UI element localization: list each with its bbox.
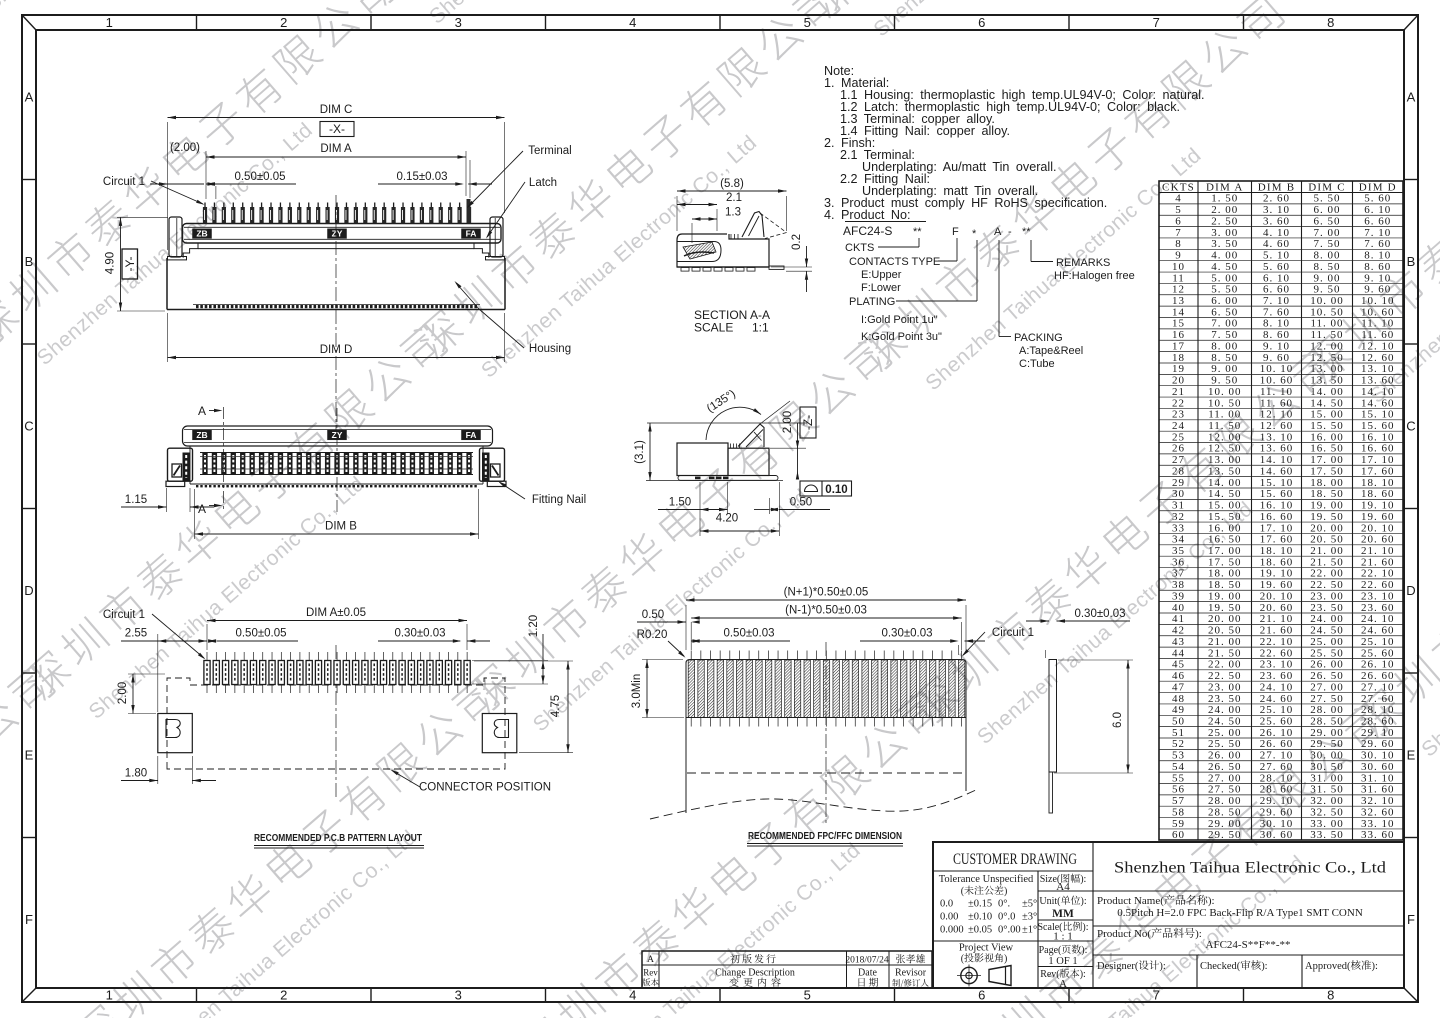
svg-text:4. 60: 4. 60 xyxy=(1263,238,1290,250)
svg-text:17. 60: 17. 60 xyxy=(1361,465,1395,477)
svg-text:12. 50: 12. 50 xyxy=(1208,443,1242,455)
svg-text:17. 60: 17. 60 xyxy=(1260,534,1294,546)
svg-text:RECOMMENDED FPC/FFC DIMENSION: RECOMMENDED FPC/FFC DIMENSION xyxy=(748,830,902,842)
svg-text:19. 00: 19. 00 xyxy=(1208,590,1242,602)
svg-text:0.50: 0.50 xyxy=(790,497,812,509)
svg-text:37: 37 xyxy=(1172,568,1185,580)
svg-text:F: F xyxy=(1407,912,1415,927)
svg-text:*: * xyxy=(972,228,977,240)
svg-text:29. 00: 29. 00 xyxy=(1310,727,1344,739)
svg-text:10. 50: 10. 50 xyxy=(1208,397,1242,409)
svg-text:ZB: ZB xyxy=(196,430,207,440)
svg-text:7. 60: 7. 60 xyxy=(1263,306,1290,318)
svg-text:19. 60: 19. 60 xyxy=(1260,579,1294,591)
svg-text:4. Product No:: 4. Product No: xyxy=(824,208,911,222)
svg-text:CKTS: CKTS xyxy=(1162,182,1195,194)
svg-text:25. 10: 25. 10 xyxy=(1361,636,1395,648)
svg-text:18. 00: 18. 00 xyxy=(1310,477,1344,489)
svg-text:A: A xyxy=(647,955,654,965)
svg-text:11. 00: 11. 00 xyxy=(1208,409,1241,421)
svg-text:):: ): xyxy=(1208,895,1215,907)
svg-text:12. 60: 12. 60 xyxy=(1260,420,1294,432)
svg-text:29: 29 xyxy=(1172,477,1185,489)
svg-text:29. 50: 29. 50 xyxy=(1208,829,1242,841)
svg-text:21. 50: 21. 50 xyxy=(1310,556,1344,568)
svg-text:24. 50: 24. 50 xyxy=(1208,715,1242,727)
svg-text:15. 00: 15. 00 xyxy=(1310,409,1344,421)
svg-text:27. 50: 27. 50 xyxy=(1310,693,1344,705)
svg-text:22. 60: 22. 60 xyxy=(1361,579,1395,591)
svg-text:41: 41 xyxy=(1172,613,1185,625)
svg-text:22. 00: 22. 00 xyxy=(1310,568,1344,580)
svg-text:22. 60: 22. 60 xyxy=(1260,647,1294,659)
svg-text:26. 00: 26. 00 xyxy=(1310,659,1344,671)
svg-text:24. 10: 24. 10 xyxy=(1361,613,1395,625)
svg-text:27. 60: 27. 60 xyxy=(1260,761,1294,773)
svg-text:32. 50: 32. 50 xyxy=(1310,806,1344,818)
svg-text:Circuit 1: Circuit 1 xyxy=(992,627,1034,639)
svg-text:(3.1): (3.1) xyxy=(634,440,646,464)
svg-text:9. 50: 9. 50 xyxy=(1211,375,1238,387)
svg-text:27. 10: 27. 10 xyxy=(1361,681,1395,693)
svg-text:R0.20: R0.20 xyxy=(637,629,668,641)
svg-text:A: A xyxy=(25,90,34,105)
svg-text:23. 00: 23. 00 xyxy=(1310,590,1344,602)
svg-text:32. 10: 32. 10 xyxy=(1361,795,1395,807)
svg-text:DIM B: DIM B xyxy=(325,521,357,533)
svg-text:22: 22 xyxy=(1172,397,1185,409)
svg-text:FA: FA xyxy=(466,430,477,440)
svg-text:B: B xyxy=(1407,254,1416,269)
svg-text:30. 60: 30. 60 xyxy=(1361,761,1395,773)
svg-text:22. 00: 22. 00 xyxy=(1208,659,1242,671)
svg-text:3. 10: 3. 10 xyxy=(1263,204,1290,216)
svg-text:±0.05: ±0.05 xyxy=(968,925,992,936)
svg-text:3: 3 xyxy=(455,988,462,1003)
svg-text:28. 00: 28. 00 xyxy=(1310,704,1344,716)
svg-text:):: ): xyxy=(1261,961,1267,972)
svg-text:6. 60: 6. 60 xyxy=(1263,284,1290,296)
svg-text:9. 10: 9. 10 xyxy=(1364,272,1391,284)
svg-text:MM: MM xyxy=(1052,908,1074,920)
svg-text:Designer(: Designer( xyxy=(1097,961,1139,972)
svg-text:28. 60: 28. 60 xyxy=(1260,784,1294,796)
svg-text:Circuit 1: Circuit 1 xyxy=(103,609,145,621)
svg-text:A: A xyxy=(994,226,1002,238)
svg-text:34: 34 xyxy=(1172,534,1185,546)
svg-text:4: 4 xyxy=(629,15,636,30)
svg-text:13. 10: 13. 10 xyxy=(1361,363,1395,375)
svg-text:20. 00: 20. 00 xyxy=(1310,522,1344,534)
svg-text:16. 00: 16. 00 xyxy=(1208,522,1242,534)
svg-text:27: 27 xyxy=(1172,454,1185,466)
svg-text:CKTS: CKTS xyxy=(845,242,874,254)
svg-text:23. 10: 23. 10 xyxy=(1260,659,1294,671)
svg-text:**: ** xyxy=(1022,226,1031,238)
svg-text:DIM C: DIM C xyxy=(320,104,353,116)
svg-text:11. 60: 11. 60 xyxy=(1361,329,1394,341)
svg-text:13. 00: 13. 00 xyxy=(1310,363,1344,375)
svg-text:2. 00: 2. 00 xyxy=(1211,204,1238,216)
svg-text:17. 50: 17. 50 xyxy=(1208,556,1242,568)
svg-text:10. 50: 10. 50 xyxy=(1310,306,1344,318)
svg-text:0.2: 0.2 xyxy=(791,234,803,250)
svg-text:Housing: Housing xyxy=(529,343,571,355)
svg-text:12. 10: 12. 10 xyxy=(1260,409,1294,421)
svg-text:20. 10: 20. 10 xyxy=(1260,590,1294,602)
svg-text:28. 50: 28. 50 xyxy=(1208,806,1242,818)
svg-text:4. 50: 4. 50 xyxy=(1211,261,1238,273)
svg-text:16. 10: 16. 10 xyxy=(1260,500,1294,512)
svg-text:CONNECTOR POSITION: CONNECTOR POSITION xyxy=(419,782,551,794)
svg-text:51: 51 xyxy=(1172,727,1185,739)
svg-text:0.30±0.03: 0.30±0.03 xyxy=(394,628,445,640)
svg-text:28. 00: 28. 00 xyxy=(1208,795,1242,807)
svg-text:12. 10: 12. 10 xyxy=(1361,340,1395,352)
svg-text:25. 00: 25. 00 xyxy=(1310,636,1344,648)
svg-text:43: 43 xyxy=(1172,636,1185,648)
svg-text:(5.8): (5.8) xyxy=(720,178,744,190)
svg-text:8. 00: 8. 00 xyxy=(1211,340,1238,352)
svg-text:48: 48 xyxy=(1172,693,1185,705)
svg-text:23. 60: 23. 60 xyxy=(1361,602,1395,614)
svg-text:0.50±0.05: 0.50±0.05 xyxy=(235,628,286,640)
svg-text:30. 50: 30. 50 xyxy=(1310,761,1344,773)
svg-text:):: ): xyxy=(1195,928,1202,940)
svg-text:50: 50 xyxy=(1172,715,1185,727)
svg-text:14. 00: 14. 00 xyxy=(1310,386,1344,398)
svg-text:20. 50: 20. 50 xyxy=(1310,534,1344,546)
svg-text:12. 00: 12. 00 xyxy=(1208,431,1242,443)
svg-text:REMARKS: REMARKS xyxy=(1056,257,1110,269)
svg-text:4: 4 xyxy=(629,988,636,1003)
svg-text:18: 18 xyxy=(1172,352,1185,364)
svg-text:4. 00: 4. 00 xyxy=(1211,250,1238,262)
svg-text:23. 60: 23. 60 xyxy=(1260,670,1294,682)
svg-text:(2.00): (2.00) xyxy=(170,142,200,154)
svg-text:±5°: ±5° xyxy=(1022,899,1037,910)
svg-text:5. 60: 5. 60 xyxy=(1364,193,1391,205)
svg-text:Fitting Nail: Fitting Nail xyxy=(532,494,586,506)
svg-text:15: 15 xyxy=(1172,318,1185,330)
svg-text:28. 10: 28. 10 xyxy=(1361,704,1395,716)
svg-text:12. 50: 12. 50 xyxy=(1310,352,1344,364)
svg-text:7. 50: 7. 50 xyxy=(1211,329,1238,341)
svg-text:):: ): xyxy=(1082,922,1088,933)
svg-text:23. 50: 23. 50 xyxy=(1310,602,1344,614)
svg-text:24. 00: 24. 00 xyxy=(1310,613,1344,625)
svg-text:13. 60: 13. 60 xyxy=(1260,443,1294,455)
svg-text:A: A xyxy=(198,404,206,418)
svg-text:): ) xyxy=(1004,954,1007,965)
svg-text:32. 00: 32. 00 xyxy=(1310,795,1344,807)
svg-text:8. 50: 8. 50 xyxy=(1211,352,1238,364)
svg-text:14. 10: 14. 10 xyxy=(1361,386,1395,398)
svg-text:6. 00: 6. 00 xyxy=(1211,295,1238,307)
svg-text:26. 10: 26. 10 xyxy=(1260,727,1294,739)
svg-text:53: 53 xyxy=(1172,750,1185,762)
svg-text:26. 60: 26. 60 xyxy=(1361,670,1395,682)
svg-text:19. 60: 19. 60 xyxy=(1361,511,1395,523)
svg-text:0.10: 0.10 xyxy=(825,484,847,496)
svg-text:3. 50: 3. 50 xyxy=(1211,238,1238,250)
svg-text:14. 10: 14. 10 xyxy=(1260,454,1294,466)
svg-text:6: 6 xyxy=(1175,215,1182,227)
svg-text:31. 00: 31. 00 xyxy=(1310,772,1344,784)
svg-text:6. 10: 6. 10 xyxy=(1263,272,1290,284)
svg-text:28. 10: 28. 10 xyxy=(1260,772,1294,784)
svg-text:33. 10: 33. 10 xyxy=(1361,818,1395,830)
svg-text:22. 10: 22. 10 xyxy=(1260,636,1294,648)
svg-text:5. 10: 5. 10 xyxy=(1263,250,1290,262)
svg-text:Revisor: Revisor xyxy=(895,968,927,979)
svg-text:15. 50: 15. 50 xyxy=(1208,511,1242,523)
svg-text:F:Lower: F:Lower xyxy=(861,282,901,294)
svg-text:30. 10: 30. 10 xyxy=(1361,750,1395,762)
svg-text:18. 00: 18. 00 xyxy=(1208,568,1242,580)
svg-text:25. 60: 25. 60 xyxy=(1361,647,1395,659)
svg-text:16. 00: 16. 00 xyxy=(1310,431,1344,443)
svg-text:25. 50: 25. 50 xyxy=(1208,738,1242,750)
svg-text:11. 10: 11. 10 xyxy=(1361,318,1394,330)
svg-text:DIM A: DIM A xyxy=(1206,182,1243,194)
svg-text:26: 26 xyxy=(1172,443,1185,455)
svg-text:47: 47 xyxy=(1172,681,1185,693)
svg-text:5. 00: 5. 00 xyxy=(1211,272,1238,284)
svg-text:16. 50: 16. 50 xyxy=(1310,443,1344,455)
svg-text:7. 60: 7. 60 xyxy=(1364,238,1391,250)
svg-text:29. 10: 29. 10 xyxy=(1361,727,1395,739)
svg-text:8. 10: 8. 10 xyxy=(1364,250,1391,262)
svg-text:1. 50: 1. 50 xyxy=(1211,193,1238,205)
svg-text:19. 10: 19. 10 xyxy=(1260,568,1294,580)
svg-text:16: 16 xyxy=(1172,329,1185,341)
svg-text:12: 12 xyxy=(1172,284,1185,296)
svg-text:20. 10: 20. 10 xyxy=(1361,522,1395,534)
svg-text:Product No(: Product No( xyxy=(1097,928,1151,940)
svg-text:26. 00: 26. 00 xyxy=(1208,750,1242,762)
svg-text:55: 55 xyxy=(1172,772,1185,784)
svg-text:0.00: 0.00 xyxy=(940,912,958,923)
svg-text:D: D xyxy=(24,583,33,598)
svg-text:14. 60: 14. 60 xyxy=(1361,397,1395,409)
svg-text:A:Tape&Reel: A:Tape&Reel xyxy=(1019,345,1083,357)
svg-text:44: 44 xyxy=(1172,647,1185,659)
svg-text:21. 60: 21. 60 xyxy=(1361,556,1395,568)
svg-text:(N+1)*0.50±0.05: (N+1)*0.50±0.05 xyxy=(784,587,869,599)
svg-text:ZB: ZB xyxy=(196,229,207,239)
svg-text:22. 10: 22. 10 xyxy=(1361,568,1395,580)
svg-text:17. 00: 17. 00 xyxy=(1310,454,1344,466)
svg-text:13. 10: 13. 10 xyxy=(1260,431,1294,443)
svg-text:11. 50: 11. 50 xyxy=(1208,420,1241,432)
svg-text:33. 50: 33. 50 xyxy=(1310,829,1344,841)
svg-text:14: 14 xyxy=(1172,306,1185,318)
svg-text:9. 60: 9. 60 xyxy=(1364,284,1391,296)
svg-text:E: E xyxy=(1407,748,1416,763)
svg-text:DIM A±0.05: DIM A±0.05 xyxy=(306,607,366,619)
svg-text:7. 10: 7. 10 xyxy=(1364,227,1391,239)
svg-text:21. 60: 21. 60 xyxy=(1260,625,1294,637)
svg-text:0.000: 0.000 xyxy=(940,925,964,936)
svg-text:17. 10: 17. 10 xyxy=(1361,454,1395,466)
svg-text:23. 00: 23. 00 xyxy=(1208,681,1242,693)
svg-text:2.00: 2.00 xyxy=(782,411,794,433)
svg-text:ZY: ZY xyxy=(332,229,343,239)
svg-text:20. 50: 20. 50 xyxy=(1208,625,1242,637)
svg-text:17: 17 xyxy=(1172,340,1185,352)
svg-text:30: 30 xyxy=(1172,488,1185,500)
svg-text:10. 00: 10. 00 xyxy=(1310,295,1344,307)
svg-text:8. 60: 8. 60 xyxy=(1263,329,1290,341)
svg-text:28. 50: 28. 50 xyxy=(1310,715,1344,727)
svg-text:46: 46 xyxy=(1172,670,1185,682)
svg-text:57: 57 xyxy=(1172,795,1185,807)
svg-text:39: 39 xyxy=(1172,590,1185,602)
svg-text:0.15±0.03: 0.15±0.03 xyxy=(396,171,447,183)
svg-text:28: 28 xyxy=(1172,465,1185,477)
svg-text:10. 60: 10. 60 xyxy=(1361,306,1395,318)
svg-text:DIM B: DIM B xyxy=(1258,182,1295,194)
svg-text:8: 8 xyxy=(1175,238,1182,250)
svg-text:8. 60: 8. 60 xyxy=(1364,261,1391,273)
svg-text:E: E xyxy=(25,748,34,763)
svg-text:35: 35 xyxy=(1172,545,1185,557)
svg-text:8. 50: 8. 50 xyxy=(1314,261,1341,273)
svg-text:29. 60: 29. 60 xyxy=(1260,806,1294,818)
svg-text:22. 50: 22. 50 xyxy=(1310,579,1344,591)
svg-text:0°.0: 0°.0 xyxy=(998,912,1015,923)
svg-text:Rev(: Rev( xyxy=(1040,969,1060,980)
svg-text:49: 49 xyxy=(1172,704,1185,716)
svg-text:2018/07/24: 2018/07/24 xyxy=(845,956,889,966)
svg-text:21. 10: 21. 10 xyxy=(1361,545,1395,557)
svg-text:):: ): xyxy=(1081,896,1087,907)
svg-text:4.90: 4.90 xyxy=(105,252,117,274)
svg-text:A: A xyxy=(198,502,206,516)
svg-text:10. 10: 10. 10 xyxy=(1361,295,1395,307)
svg-text:59: 59 xyxy=(1172,818,1185,830)
svg-text:33. 60: 33. 60 xyxy=(1361,829,1395,841)
svg-text:11. 50: 11. 50 xyxy=(1310,329,1343,341)
svg-text:±3°: ±3° xyxy=(1022,912,1037,923)
svg-text:9. 10: 9. 10 xyxy=(1263,340,1290,352)
svg-text:3.0Min: 3.0Min xyxy=(631,674,643,709)
svg-text:Page(: Page( xyxy=(1039,945,1062,956)
svg-text:42: 42 xyxy=(1172,625,1185,637)
svg-text:C: C xyxy=(1406,419,1415,434)
svg-text:40: 40 xyxy=(1172,602,1185,614)
svg-text:0.50±0.03: 0.50±0.03 xyxy=(723,628,774,640)
svg-text:8: 8 xyxy=(1327,15,1334,30)
svg-text:1: 1 xyxy=(106,15,113,30)
svg-text:27. 10: 27. 10 xyxy=(1260,750,1294,762)
svg-text:3: 3 xyxy=(455,15,462,30)
svg-text:0.50: 0.50 xyxy=(642,609,664,621)
svg-text:1.15: 1.15 xyxy=(125,494,147,506)
svg-text:Date: Date xyxy=(858,968,877,979)
svg-text:10. 10: 10. 10 xyxy=(1260,363,1294,375)
svg-text:17. 00: 17. 00 xyxy=(1208,545,1242,557)
svg-text:9: 9 xyxy=(1175,250,1182,262)
svg-text:15. 10: 15. 10 xyxy=(1361,409,1395,421)
svg-text:Checked(: Checked( xyxy=(1200,961,1241,972)
svg-text:F: F xyxy=(952,226,959,238)
svg-text:16. 10: 16. 10 xyxy=(1361,431,1395,443)
svg-text:2: 2 xyxy=(280,988,287,1003)
svg-text:10. 60: 10. 60 xyxy=(1260,375,1294,387)
svg-text:CONTACTS TYPE: CONTACTS TYPE xyxy=(849,256,940,268)
svg-text:):: ): xyxy=(1080,874,1086,885)
svg-text:16. 50: 16. 50 xyxy=(1208,534,1242,546)
svg-text:13. 50: 13. 50 xyxy=(1208,465,1242,477)
svg-text:54: 54 xyxy=(1172,761,1185,773)
svg-text:5: 5 xyxy=(1175,204,1182,216)
svg-text:1.50: 1.50 xyxy=(669,497,691,509)
svg-text:28. 60: 28. 60 xyxy=(1361,715,1395,727)
svg-text:24. 60: 24. 60 xyxy=(1260,693,1294,705)
svg-text:7. 10: 7. 10 xyxy=(1263,295,1290,307)
svg-text:23. 50: 23. 50 xyxy=(1208,693,1242,705)
svg-text:0.0: 0.0 xyxy=(940,899,953,910)
svg-text:12. 60: 12. 60 xyxy=(1361,352,1395,364)
svg-text:7. 00: 7. 00 xyxy=(1211,318,1238,330)
svg-text:24. 60: 24. 60 xyxy=(1361,625,1395,637)
svg-text:14. 50: 14. 50 xyxy=(1208,488,1242,500)
svg-text:(N-1)*0.50±0.03: (N-1)*0.50±0.03 xyxy=(785,605,867,617)
svg-text:4. 10: 4. 10 xyxy=(1263,227,1290,239)
svg-text:A: A xyxy=(1407,90,1416,105)
svg-text:Product Name(: Product Name( xyxy=(1097,895,1164,907)
svg-text:24: 24 xyxy=(1172,420,1185,432)
svg-text:14. 50: 14. 50 xyxy=(1310,397,1344,409)
svg-text:26. 10: 26. 10 xyxy=(1361,659,1395,671)
svg-text:11. 10: 11. 10 xyxy=(1260,386,1293,398)
svg-text:27. 00: 27. 00 xyxy=(1310,681,1344,693)
svg-text:25. 00: 25. 00 xyxy=(1208,727,1242,739)
svg-text:31. 50: 31. 50 xyxy=(1310,784,1344,796)
svg-text:5. 50: 5. 50 xyxy=(1211,284,1238,296)
svg-text:0°.00: 0°.00 xyxy=(998,925,1021,936)
svg-text:6: 6 xyxy=(978,988,985,1003)
svg-text:DIM C: DIM C xyxy=(1308,182,1345,194)
svg-text:15. 60: 15. 60 xyxy=(1361,420,1395,432)
svg-text:19. 10: 19. 10 xyxy=(1361,500,1395,512)
svg-text:1: 1 xyxy=(106,988,113,1003)
svg-text:56: 56 xyxy=(1172,784,1185,796)
svg-text:I:Gold Point 1u": I:Gold Point 1u" xyxy=(861,314,938,326)
svg-text:6. 50: 6. 50 xyxy=(1211,306,1238,318)
svg-text:17. 10: 17. 10 xyxy=(1260,522,1294,534)
svg-text:3. 00: 3. 00 xyxy=(1211,227,1238,239)
svg-text:Tolerance Unspecified: Tolerance Unspecified xyxy=(939,874,1034,885)
svg-text:21: 21 xyxy=(1172,386,1185,398)
svg-text:AFC24-S: AFC24-S xyxy=(843,224,892,238)
svg-text:Terminal: Terminal xyxy=(528,145,571,157)
svg-text:Rev: Rev xyxy=(643,968,658,978)
svg-text:D: D xyxy=(1406,583,1415,598)
svg-text:FA: FA xyxy=(466,229,477,239)
svg-text:2. 50: 2. 50 xyxy=(1211,215,1238,227)
svg-text:9. 00: 9. 00 xyxy=(1314,272,1341,284)
svg-text:21. 10: 21. 10 xyxy=(1260,613,1294,625)
svg-text:10: 10 xyxy=(1172,261,1185,273)
svg-text:PLATING: PLATING xyxy=(849,296,895,308)
svg-text:13. 00: 13. 00 xyxy=(1208,454,1242,466)
svg-text:1 : 1: 1 : 1 xyxy=(1053,931,1073,943)
svg-text:27. 00: 27. 00 xyxy=(1208,772,1242,784)
svg-text:20. 60: 20. 60 xyxy=(1260,602,1294,614)
